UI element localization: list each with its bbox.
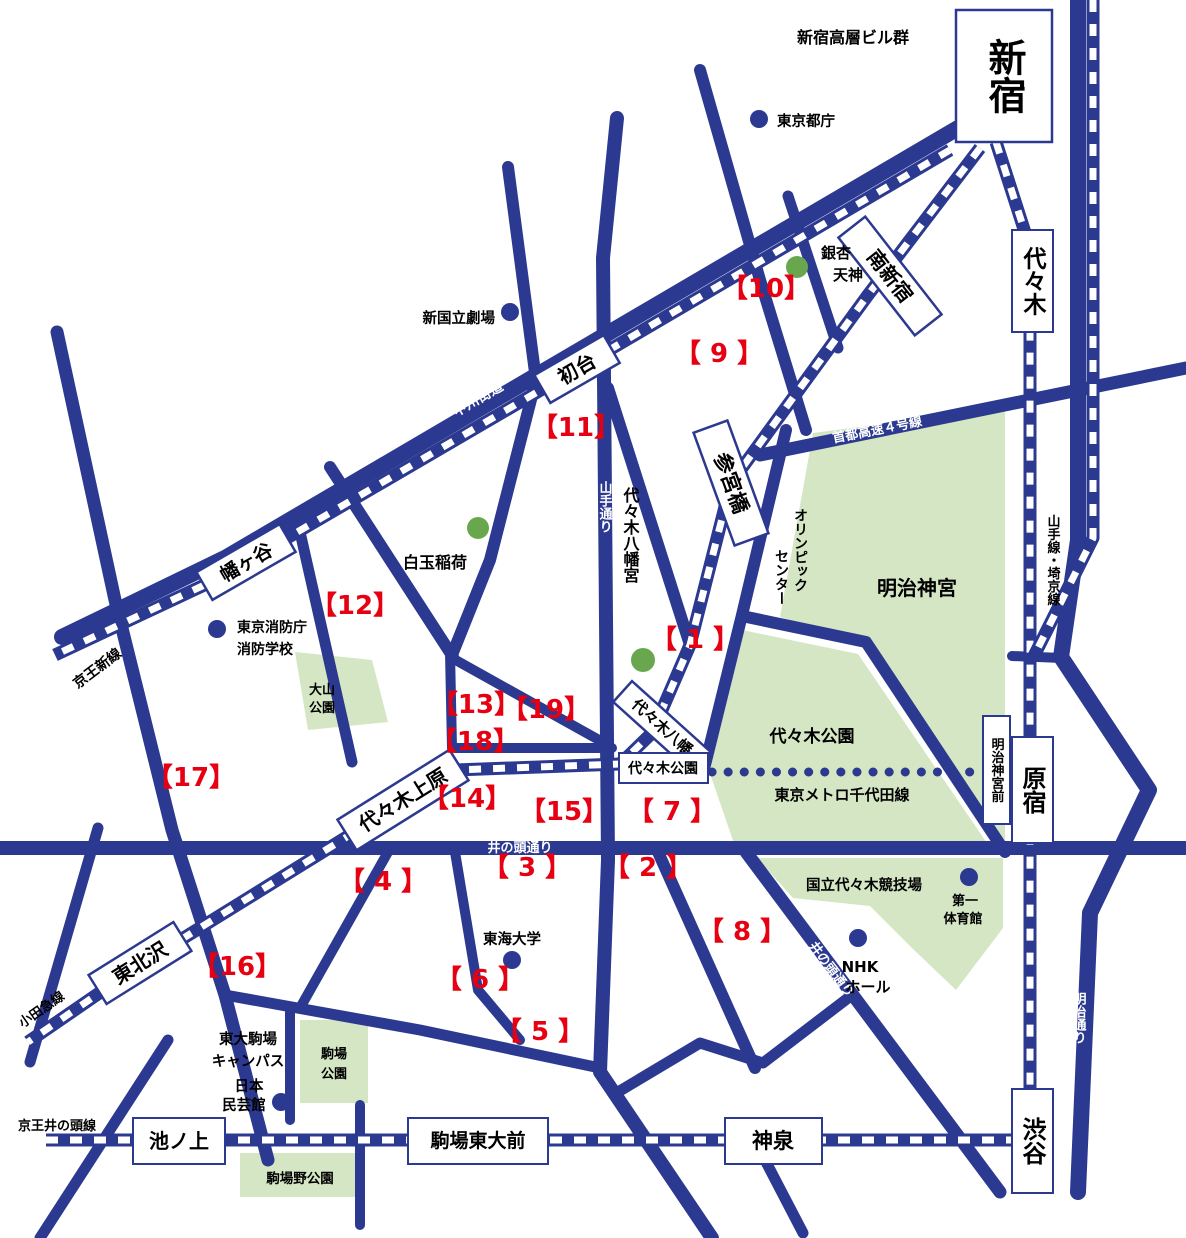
icho-tenjin-label-2: 天神 bbox=[833, 266, 863, 284]
todai-komaba-label-1: 東大駒場 bbox=[219, 1030, 277, 1048]
park-komaba-label-2: 公園 bbox=[321, 1066, 347, 1082]
marker-17: 【17】 bbox=[147, 763, 235, 793]
park-komabano-label: 駒場野公園 bbox=[266, 1170, 334, 1187]
todai-komaba-label-2: キャンパス bbox=[212, 1053, 285, 1070]
station-shinjuku-label: 新宿 bbox=[982, 38, 1026, 114]
shiratama-inari-dot bbox=[467, 517, 489, 539]
station-yoyogi: 代々木 bbox=[1012, 230, 1053, 332]
daiichi-gym-label-2: 体育館 bbox=[943, 911, 982, 927]
yamanote-saikyo-line-label: 山手線・埼京線 bbox=[1045, 514, 1061, 607]
daiichi-gym-dot bbox=[960, 868, 978, 886]
marker-9: 【 9 】 bbox=[675, 339, 763, 369]
station-meiji-jingumae-label: 明治神宮前 bbox=[989, 738, 1005, 804]
marker-10: 【10】 bbox=[722, 274, 810, 304]
theatre-dot bbox=[501, 303, 519, 321]
station-shinsen-label: 神泉 bbox=[752, 1129, 795, 1153]
marker-1: 【 1 】 bbox=[651, 625, 739, 655]
icho-tenjin-label-1: 銀杏 bbox=[821, 244, 852, 262]
tocho-label: 東京都庁 bbox=[777, 112, 835, 130]
yamate-dori-label: 山手通り bbox=[597, 480, 613, 533]
marker-14: 【14】 bbox=[423, 784, 511, 814]
mingeikan-label-1: 日本 bbox=[235, 1077, 264, 1095]
station-shinsen: 神泉 bbox=[725, 1118, 822, 1164]
olympic-center-label-2: センター bbox=[773, 549, 789, 605]
station-ikenoue-label: 池ノ上 bbox=[149, 1129, 209, 1153]
marker-5: 【 5 】 bbox=[496, 1017, 584, 1047]
marker-7: 【 7 】 bbox=[628, 797, 716, 827]
theatre-label: 新国立劇場 bbox=[423, 309, 496, 327]
park-komaba-label-1: 駒場 bbox=[320, 1046, 347, 1062]
daiichi-gym-label-1: 第一 bbox=[952, 893, 978, 909]
marker-3: 【 3 】 bbox=[483, 853, 571, 883]
marker-18: 【18】 bbox=[431, 727, 519, 757]
tocho-dot bbox=[750, 110, 768, 128]
marker-19: 【19】 bbox=[502, 695, 590, 725]
station-meiji-jingumae: 明治神宮前 bbox=[983, 716, 1010, 824]
station-shibuya: 渋谷 bbox=[1012, 1089, 1053, 1193]
hachimangu-label: 代々木八幡宮 bbox=[621, 486, 641, 584]
park-yoyogi-label: 代々木公園 bbox=[769, 726, 855, 747]
nhk-hall-label-1: NHK bbox=[842, 958, 880, 976]
marker-15: 【15】 bbox=[520, 797, 608, 827]
station-higashi-kitazawa: 東北沢 bbox=[89, 922, 192, 1004]
nhk-hall-label-2: ホール bbox=[845, 978, 890, 996]
keio-inokashira-line-label: 京王井の頭線 bbox=[18, 1118, 97, 1134]
station-yoyogi-koen: 代々木公園 bbox=[619, 753, 708, 783]
nhk-hall-dot bbox=[849, 929, 867, 947]
olympic-center-label-1: オリンピック bbox=[792, 508, 808, 592]
skyscrapers-label: 新宿高層ビル群 bbox=[797, 28, 909, 47]
fire-school-dot bbox=[208, 620, 226, 638]
station-shinjuku: 新宿 bbox=[956, 10, 1052, 142]
park-meiji-jingu-label: 明治神宮 bbox=[877, 576, 957, 600]
station-yoyogi-label: 代々木 bbox=[1019, 247, 1048, 316]
marker-16: 【16】 bbox=[193, 952, 281, 982]
mingeikan-label-2: 民芸館 bbox=[222, 1096, 266, 1114]
marker-6: 【 6 】 bbox=[436, 965, 524, 995]
marker-12: 【12】 bbox=[311, 591, 399, 621]
fire-school-label-1: 東京消防庁 bbox=[237, 619, 307, 636]
station-harajuku-label: 原宿 bbox=[1018, 766, 1046, 814]
fire-school-label-2: 消防学校 bbox=[237, 641, 294, 658]
station-yoyogi-koen-label: 代々木公園 bbox=[627, 760, 698, 777]
chiyoda-line-label: 東京メトロ千代田線 bbox=[774, 786, 909, 804]
marker-11: 【11】 bbox=[532, 413, 620, 443]
station-harajuku: 原宿 bbox=[1012, 737, 1053, 843]
marker-8: 【 8 】 bbox=[698, 917, 786, 947]
marker-4: 【 4 】 bbox=[339, 867, 427, 897]
station-shibuya-label: 渋谷 bbox=[1018, 1117, 1046, 1166]
park-stadium-label: 国立代々木競技場 bbox=[806, 876, 922, 894]
area-map: 南新宿 参宮橋 代々木八幡 代々木上原 東北沢 初台 幡ヶ谷 新宿 代々木 原宿… bbox=[0, 0, 1186, 1238]
station-ikenoue: 池ノ上 bbox=[133, 1118, 225, 1164]
keio-new-line-label: 京王新線 bbox=[70, 645, 125, 692]
park-oyama-label-1: 大山 bbox=[309, 682, 335, 698]
station-komaba-todaimae-label: 駒場東大前 bbox=[430, 1129, 525, 1152]
marker-2: 【 2 】 bbox=[604, 853, 692, 883]
road-nhk-west bbox=[658, 852, 755, 1068]
station-komaba-todaimae: 駒場東大前 bbox=[408, 1118, 548, 1164]
mingeikan-dot bbox=[272, 1093, 290, 1111]
meiji-dori-label: 明治通り bbox=[1071, 992, 1087, 1044]
shiratama-inari-label: 白玉稲荷 bbox=[403, 553, 467, 572]
park-oyama-label-2: 公園 bbox=[309, 700, 335, 716]
tokai-univ-label: 東海大学 bbox=[483, 930, 541, 948]
